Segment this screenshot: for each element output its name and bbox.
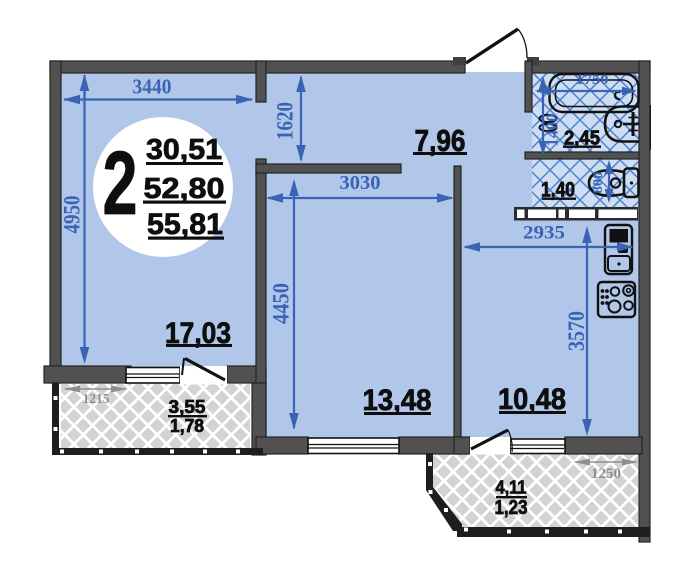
svg-text:1750: 1750 [576, 72, 609, 88]
svg-text:1400: 1400 [543, 114, 562, 147]
svg-text:1620: 1620 [273, 102, 298, 140]
svg-text:1215: 1215 [83, 392, 110, 407]
svg-text:30,51: 30,51 [146, 134, 222, 166]
svg-text:52,80: 52,80 [144, 173, 225, 205]
svg-text:4450: 4450 [269, 283, 294, 324]
svg-text:4,11: 4,11 [496, 477, 527, 498]
svg-text:2935: 2935 [523, 223, 565, 244]
svg-text:3030: 3030 [340, 172, 381, 194]
svg-text:1250: 1250 [591, 466, 621, 482]
svg-text:800: 800 [590, 171, 605, 193]
svg-text:3570: 3570 [564, 311, 589, 351]
svg-text:1,78: 1,78 [170, 416, 204, 436]
svg-text:1,23: 1,23 [495, 497, 528, 519]
svg-text:2: 2 [102, 134, 137, 234]
svg-text:3440: 3440 [133, 75, 172, 99]
svg-text:3,55: 3,55 [169, 397, 206, 417]
svg-text:55,81: 55,81 [147, 208, 223, 241]
svg-text:4950: 4950 [60, 196, 85, 234]
